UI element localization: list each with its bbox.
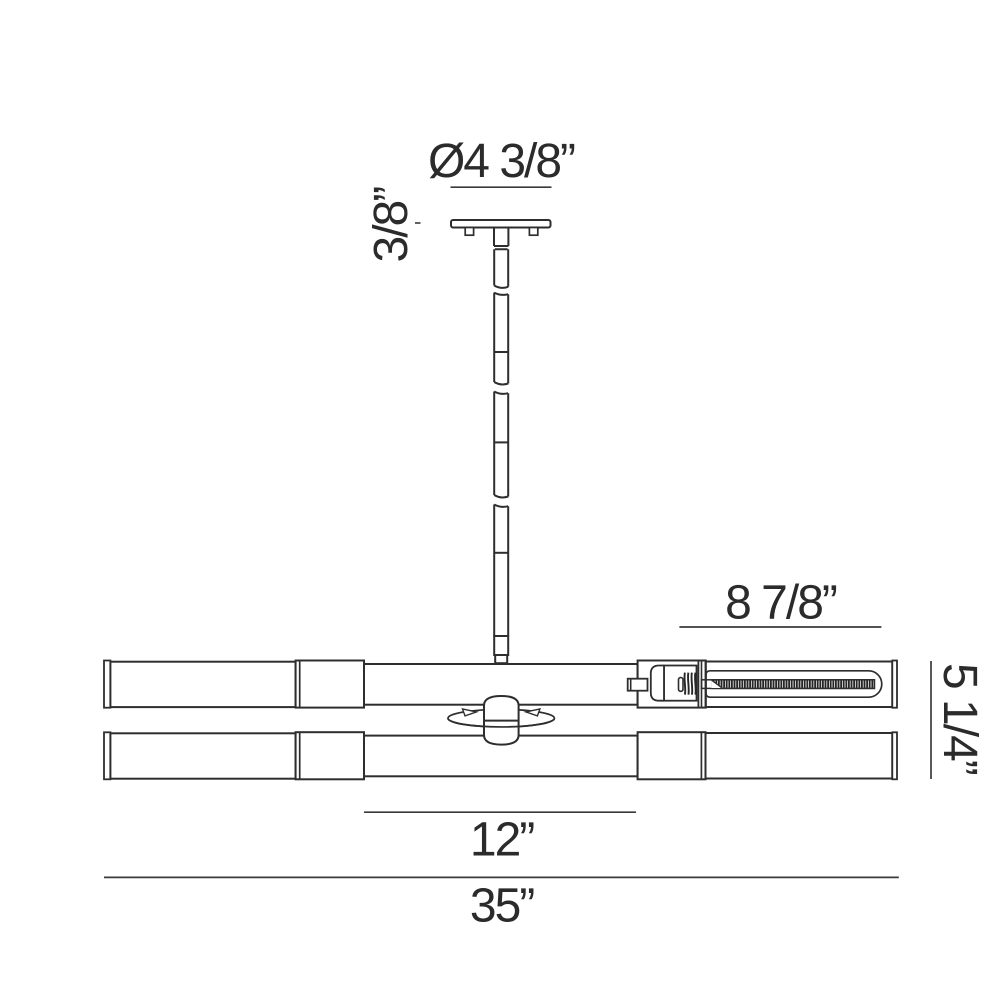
svg-text:12”: 12” (470, 813, 534, 866)
svg-text:Ø4 3/8”: Ø4 3/8” (428, 135, 575, 188)
svg-text:5 1/4”: 5 1/4” (933, 663, 986, 775)
svg-text:3/8”: 3/8” (365, 187, 418, 263)
svg-text:8 7/8”: 8 7/8” (725, 577, 837, 630)
svg-text:35”: 35” (470, 880, 534, 933)
